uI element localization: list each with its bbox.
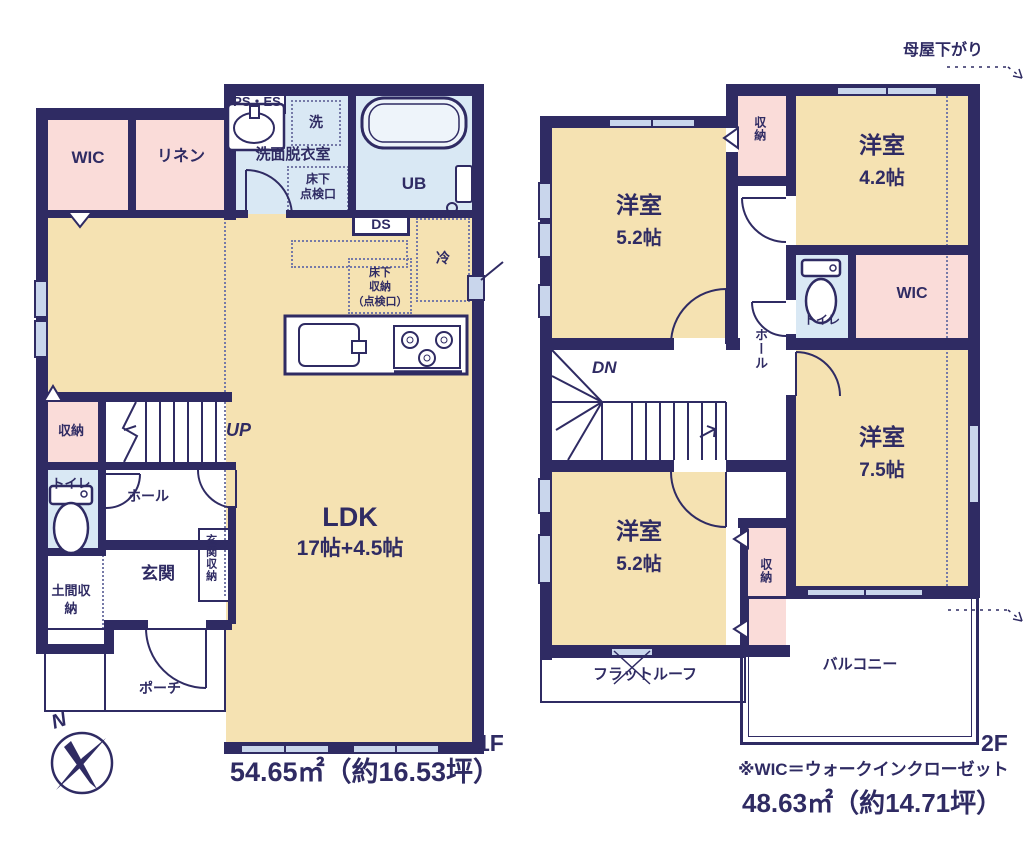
label-fridge: 冷 [416,250,470,266]
label-balcony: バルコニー [795,656,925,673]
label-flat-roof: フラットルーフ [570,666,720,683]
wall-2f-stairs-bottom-r [726,460,790,472]
label-underfloor-storage: 床下 収納 （点検口） [348,266,412,309]
label-wic-note: ※WIC＝ウォークインクローゼット [738,760,1009,780]
wall-2f-nw-bottom-l [540,338,674,350]
moyasagari-arrowheads [1013,69,1022,621]
window-1f-south-1 [240,744,330,754]
label-storage-1f: 収納 [42,424,100,439]
label-area-1f: 54.65㎡（約16.53坪） [210,757,520,788]
label-wic-1f: WIC [42,148,134,168]
label-closet-n: 収納 [752,116,766,176]
label-washer: 洗 [291,114,341,130]
label-wic-2f: WIC [856,285,968,303]
label-bedroom-ne-size: 4.2帖 [796,168,968,190]
label-bedroom-nw: 洋室 [552,192,726,218]
wall-1f-top-left [36,108,236,120]
wall-2f-toiletrow-top [786,245,980,255]
label-bedroom-e-size: 7.5帖 [796,460,968,482]
label-bedroom-sw: 洋室 [552,518,726,544]
wall-1f-entrance-bottom-r [206,620,232,630]
window-1f-west-2 [34,320,48,358]
compass-icon [52,733,112,793]
label-linen-1f: リネン [136,148,226,166]
wall-2f-closet-n-bottom [726,176,790,186]
wall-2f-toiletrow-bottom [786,338,980,350]
wall-2f-col726-a [726,84,738,126]
wall-2f-sw-bottom [540,645,790,657]
wall-1f-entrance-right [228,550,236,624]
wall-1f-doma-bottom [36,644,114,654]
label-area-2f: 48.63㎡（約14.71坪） [742,789,1002,819]
wall-2f-nw-bottom-r [726,338,740,350]
label-entrance-storage: 玄関収納 [204,534,217,598]
door-bedroom-ne [742,198,786,242]
label-moyasagari: 母屋下がり [903,42,983,60]
label-ds: DS [352,216,410,232]
label-bedroom-e: 洋室 [796,424,968,450]
label-underfloor-storage-line3: （点検口） [348,295,412,309]
label-underfloor-storage-line1: 床下 [348,266,412,280]
wall-2f-col786-a [786,84,796,196]
window-2f-nw-left-2 [538,222,552,258]
label-ldk-size: 17帖+4.5帖 [240,537,460,561]
label-bedroom-ne: 洋室 [796,132,968,158]
room-bath-1f [354,96,474,214]
label-ldk: LDK [270,502,430,533]
label-compass-north: N [49,708,70,734]
wall-2f-stairs-bottom-l [540,460,674,472]
label-underfloor-hatch: 床下 点検口 [287,172,349,202]
window-2f-balcony-door [806,588,924,597]
label-closet-s: 収納 [758,558,772,618]
stairs-2f [552,350,726,460]
label-underfloor-storage-line2: 収納 [348,280,412,294]
label-bath: UB [354,174,474,194]
kitchen-front-outline [291,240,408,268]
porch-outline [44,628,226,712]
room-ldk-west-1f [42,214,226,396]
label-bedroom-sw-size: 5.2帖 [552,554,726,576]
label-hall-1f: ホール [102,488,194,504]
wall-1f-wash-bottom-l [224,210,248,218]
label-porch: ポーチ [118,680,202,696]
label-floor-2f: 2F [981,730,1008,756]
label-underfloor-hatch-line2: 点検口 [287,187,349,202]
label-bedroom-nw-size: 5.2帖 [552,228,726,250]
window-2f-nw-top [608,118,696,128]
wall-2f-col786-d [786,395,796,590]
label-underfloor-hatch-line1: 床下 [287,172,349,187]
wall-2f-closet-s-left [740,518,748,645]
label-toilet-2f: トイレ [794,314,850,328]
window-2f-sw-left-1 [538,478,552,514]
label-doma-storage: 土間収納 [48,582,94,617]
window-2f-e-right [968,424,980,504]
window-2f-sw-left-2 [538,534,552,584]
floor-plan: WIC リネン PS・ES 洗面脱衣室 洗 床下 点検口 UB DS 冷 床下 … [0,0,1029,848]
label-hall-2f: ホール [752,328,767,398]
label-up: UP [226,420,251,441]
window-2f-nw-left-1 [538,182,552,220]
label-entrance: 玄関 [106,564,210,584]
label-floor-1f: 1F [477,730,504,756]
label-ps-es: PS・ES [228,95,286,110]
label-dn: DN [592,358,617,378]
wall-1f-below-wic [36,210,236,218]
wall-1f-left [36,108,48,654]
stairs-1f [123,402,216,462]
window-1f-west-1 [34,280,48,318]
wall-1f-toilet-bottom [36,548,106,556]
wall-1f-below-west-room [36,392,232,402]
label-toilet-1f: トイレ [42,477,100,492]
window-2f-sw-bottom [610,647,654,657]
window-2f-ne-top [836,86,938,96]
window-1f-south-2 [352,744,440,754]
label-washroom: 洗面脱衣室 [234,146,352,163]
window-2f-nw-left-3 [538,284,552,318]
wall-2f-toilet-wic [848,252,856,344]
wall-2f-col786-b [786,255,796,300]
wall-1f-stairs-bottom [36,462,236,470]
